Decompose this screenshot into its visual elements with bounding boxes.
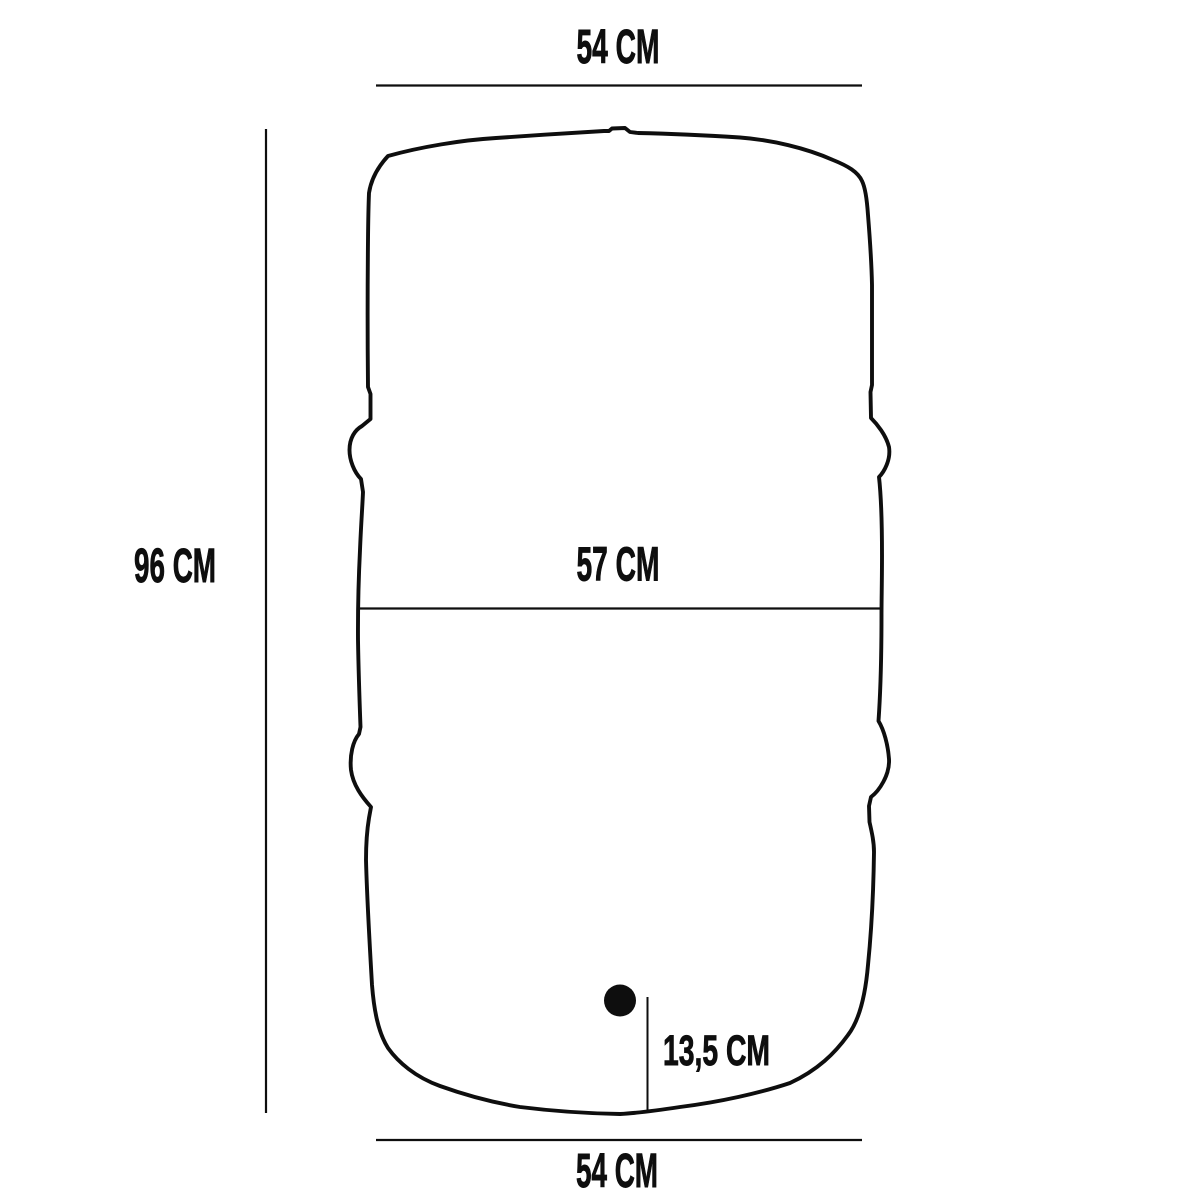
svg-text:96 CM: 96 CM: [134, 540, 216, 593]
svg-text:57 CM: 57 CM: [577, 539, 660, 592]
svg-text:54 CM: 54 CM: [577, 21, 660, 74]
svg-text:54 CM: 54 CM: [576, 1145, 658, 1198]
svg-text:13,5 CM: 13,5 CM: [663, 1027, 770, 1075]
